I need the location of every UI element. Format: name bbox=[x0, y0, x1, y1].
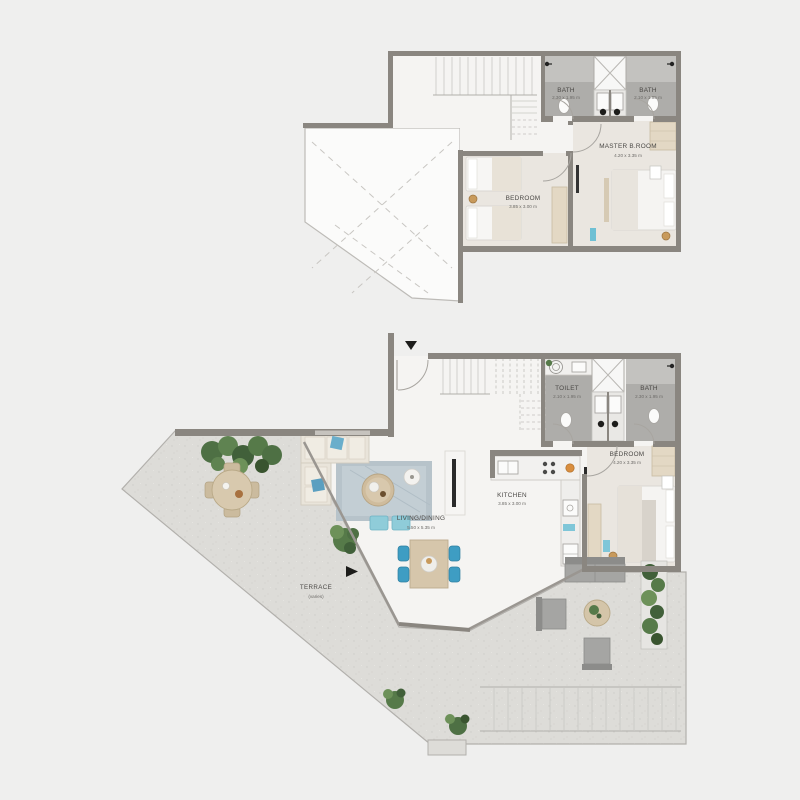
toilet-wc bbox=[561, 413, 572, 428]
upper-floor-plan: BATH 2.30 x 1.95 m BATH 2.10 x 1.95 m MA… bbox=[303, 51, 681, 303]
gold-lamp bbox=[469, 195, 477, 203]
wardrobe bbox=[652, 446, 675, 476]
dining-chair bbox=[449, 567, 460, 582]
upper-master-dims: 4.20 x 3.35 m bbox=[614, 153, 642, 158]
armchair-back bbox=[582, 664, 612, 670]
bath-wc bbox=[649, 409, 660, 424]
upper-master-label: MASTER B.ROOM bbox=[599, 143, 657, 150]
dresser bbox=[588, 504, 601, 564]
lower-bath-tiles bbox=[626, 358, 675, 384]
terrace-dims: (varies) bbox=[308, 594, 324, 599]
blanket bbox=[612, 170, 638, 230]
basin-left bbox=[597, 93, 609, 110]
kitchen-label: KITCHEN bbox=[497, 492, 527, 499]
window bbox=[315, 431, 370, 436]
upper-void-area bbox=[305, 128, 460, 301]
tv-panel bbox=[576, 165, 579, 193]
pillow bbox=[664, 202, 674, 226]
dining-chair bbox=[398, 567, 409, 582]
terrace-label: TERRACE bbox=[300, 584, 332, 591]
armchair bbox=[584, 638, 610, 664]
dining-chair bbox=[398, 546, 409, 561]
upper-bath2-label: BATH bbox=[639, 87, 657, 94]
vertical-planter bbox=[641, 561, 667, 649]
towel bbox=[563, 524, 575, 531]
blanket bbox=[618, 486, 642, 562]
armchair bbox=[542, 599, 566, 629]
pouf bbox=[370, 516, 388, 530]
wall-art bbox=[662, 476, 673, 489]
stool-left bbox=[598, 421, 604, 427]
hob-burner bbox=[551, 462, 555, 466]
gold-lamp bbox=[662, 232, 670, 240]
basin-right bbox=[611, 93, 623, 110]
basin-right bbox=[609, 396, 621, 413]
hob-burner bbox=[543, 462, 547, 466]
lower-bedroom-dims: 4.20 x 3.35 m bbox=[613, 460, 641, 465]
upper-bath2-dims: 2.10 x 1.95 m bbox=[634, 95, 662, 100]
tray bbox=[369, 482, 379, 492]
lower-bedroom-label: BEDROOM bbox=[610, 451, 645, 458]
armchair-back bbox=[536, 597, 542, 631]
teal-accent bbox=[603, 540, 610, 552]
upper-bath1-tiles bbox=[545, 56, 594, 82]
tv-screen bbox=[452, 459, 456, 507]
stool-left bbox=[600, 109, 606, 115]
pillow bbox=[664, 174, 674, 198]
fruit-bowl bbox=[566, 464, 574, 472]
upper-bath1-label: BATH bbox=[557, 87, 575, 94]
plant-pot bbox=[546, 360, 552, 366]
hob-burner bbox=[551, 470, 555, 474]
pillow bbox=[468, 208, 477, 238]
upper-bedroom-dims: 3.85 x 3.00 m bbox=[509, 204, 537, 209]
wall-art bbox=[650, 166, 661, 179]
teal-accent bbox=[590, 228, 596, 241]
blanket bbox=[492, 157, 521, 191]
outdoor-sofa-back bbox=[565, 557, 625, 564]
upper-bath2-tiles bbox=[626, 56, 676, 82]
toilet-label: TOILET bbox=[555, 385, 579, 392]
basin-left bbox=[595, 396, 607, 413]
lower-bath-dims: 2.30 x 1.95 m bbox=[635, 394, 663, 399]
floorplan-sheet: BATH 2.30 x 1.95 m BATH 2.10 x 1.95 m MA… bbox=[0, 0, 800, 800]
lower-floor-plan: TOILET 2.10 x 1.95 m BATH 2.30 x 1.95 m … bbox=[122, 333, 686, 755]
lower-bath-label: BATH bbox=[640, 385, 658, 392]
round-table bbox=[212, 470, 252, 510]
stool-right bbox=[614, 109, 620, 115]
pillow bbox=[468, 159, 477, 189]
oven bbox=[563, 500, 578, 516]
kitchen-dims: 3.85 x 3.00 m bbox=[498, 501, 526, 506]
bench bbox=[604, 178, 609, 222]
blue-pillow bbox=[330, 436, 344, 450]
pillow bbox=[666, 526, 674, 558]
entry-arrow-icon bbox=[405, 341, 417, 350]
hob-burner bbox=[543, 470, 547, 474]
upper-bath1-dims: 2.30 x 1.95 m bbox=[552, 95, 580, 100]
dining-chair bbox=[449, 546, 460, 561]
laundry-sink bbox=[572, 362, 586, 372]
stool-right bbox=[612, 421, 618, 427]
upper-bedroom-label: BEDROOM bbox=[506, 195, 541, 202]
living-dining-label: LIVING/DINING bbox=[397, 515, 445, 522]
blanket bbox=[492, 206, 521, 240]
throw bbox=[642, 500, 656, 562]
floorplan-drawing: BATH 2.30 x 1.95 m BATH 2.10 x 1.95 m MA… bbox=[0, 0, 800, 800]
pillow bbox=[666, 490, 674, 522]
terrace-step bbox=[428, 740, 466, 755]
dresser bbox=[552, 187, 567, 243]
living-dining-dims: 5.50 x 5.35 m bbox=[407, 525, 435, 530]
toilet-dims: 2.10 x 1.95 m bbox=[553, 394, 581, 399]
